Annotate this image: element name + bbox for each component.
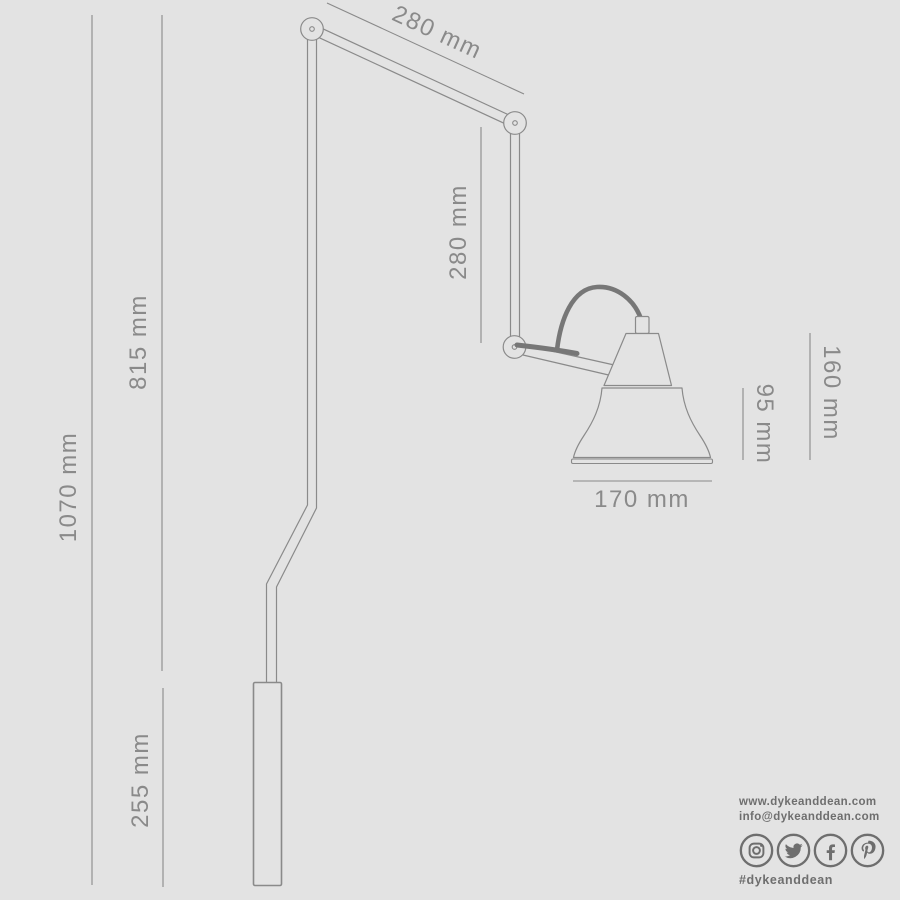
branding-block: www.dykeanddean.com info@dykeanddean.com — [739, 795, 885, 887]
dimension-label-shade-height: 95 mm — [750, 384, 778, 465]
website-url: www.dykeanddean.com — [739, 795, 885, 810]
social-icons-row — [739, 833, 885, 868]
dimension-label-head-height: 160 mm — [817, 345, 845, 441]
instagram-icon[interactable] — [739, 833, 774, 868]
facebook-icon[interactable] — [813, 833, 848, 868]
dimension-label-stem-drop: 815 mm — [125, 294, 153, 390]
product-dimension-diagram: 1070 mm 815 mm 255 mm 280 mm 280 mm 95 m… — [0, 0, 900, 900]
email-address: info@dykeanddean.com — [739, 810, 885, 825]
pivot-joint — [301, 18, 324, 41]
pinterest-icon[interactable] — [850, 833, 885, 868]
shade-rim — [572, 459, 713, 464]
wall-stem — [277, 29, 317, 683]
pivot-pins — [310, 27, 518, 350]
dimension-label-forearm: 280 mm — [445, 184, 473, 280]
pivot-joints — [301, 18, 527, 359]
hashtag: #dykeanddean — [739, 873, 885, 887]
wall-mount-tube — [254, 683, 282, 886]
lamp-holder — [604, 334, 672, 386]
dimension-label-overall-drop: 1070 mm — [55, 432, 83, 543]
twitter-icon[interactable] — [776, 833, 811, 868]
wall-stem — [267, 29, 308, 683]
cord-grip — [636, 317, 650, 334]
dimension-label-wall-tube: 255 mm — [127, 732, 155, 828]
lamp-shade — [574, 388, 711, 458]
dimension-label-shade-diameter: 170 mm — [594, 486, 690, 514]
pivot-joint — [504, 112, 527, 135]
